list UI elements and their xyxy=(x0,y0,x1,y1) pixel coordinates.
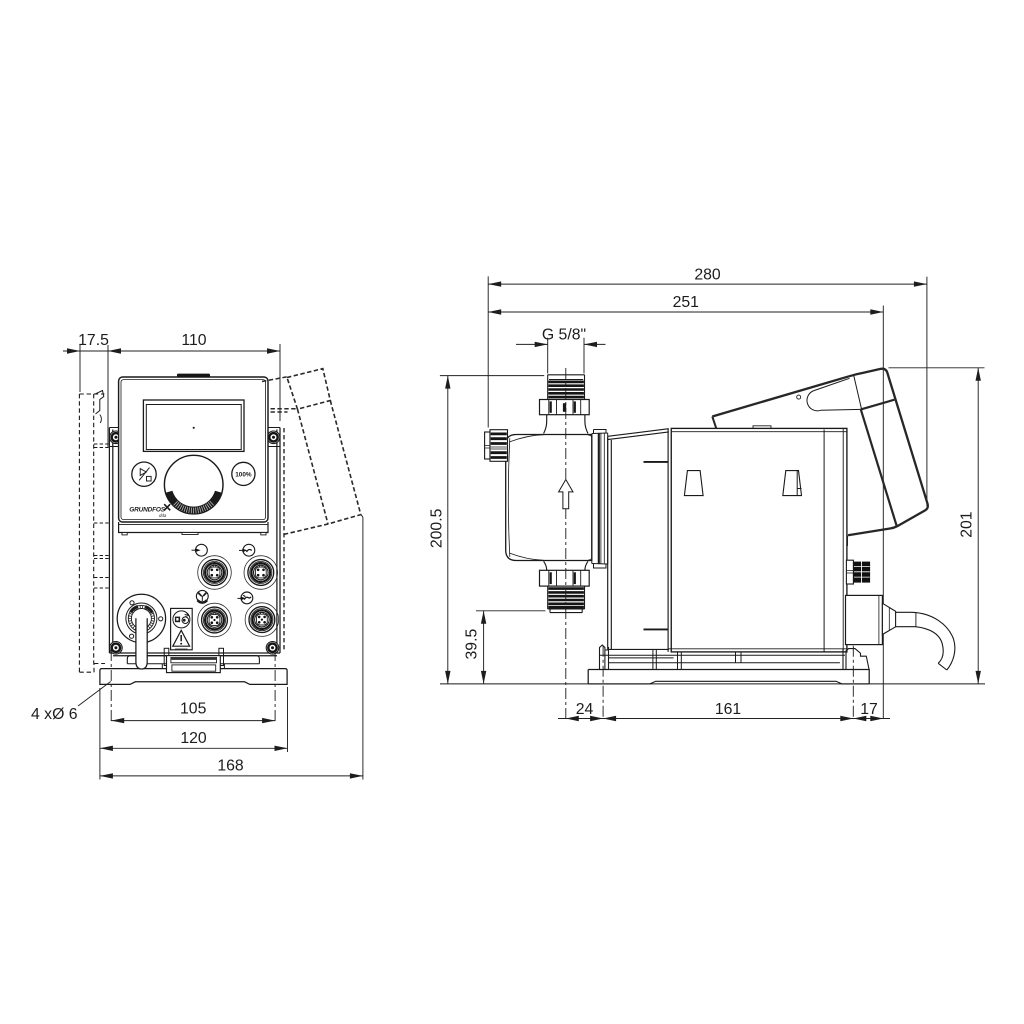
svg-text:dda: dda xyxy=(159,513,167,518)
svg-text:120: 120 xyxy=(180,730,207,747)
svg-text:4 xØ 6: 4 xØ 6 xyxy=(31,706,78,723)
svg-text:280: 280 xyxy=(694,266,721,283)
svg-text:24: 24 xyxy=(576,701,594,718)
svg-text:105: 105 xyxy=(180,701,207,718)
svg-text:100%: 100% xyxy=(235,471,252,478)
svg-text:39.5: 39.5 xyxy=(463,629,480,660)
svg-text:17: 17 xyxy=(860,701,878,718)
svg-text:201: 201 xyxy=(959,511,976,538)
svg-text:161: 161 xyxy=(715,701,742,718)
svg-text:110: 110 xyxy=(181,332,206,349)
svg-text:251: 251 xyxy=(673,294,700,311)
svg-text:G 5/8": G 5/8" xyxy=(542,326,586,343)
svg-text:200.5: 200.5 xyxy=(429,508,446,548)
svg-text:17.5: 17.5 xyxy=(78,332,109,349)
svg-text:168: 168 xyxy=(217,757,244,774)
